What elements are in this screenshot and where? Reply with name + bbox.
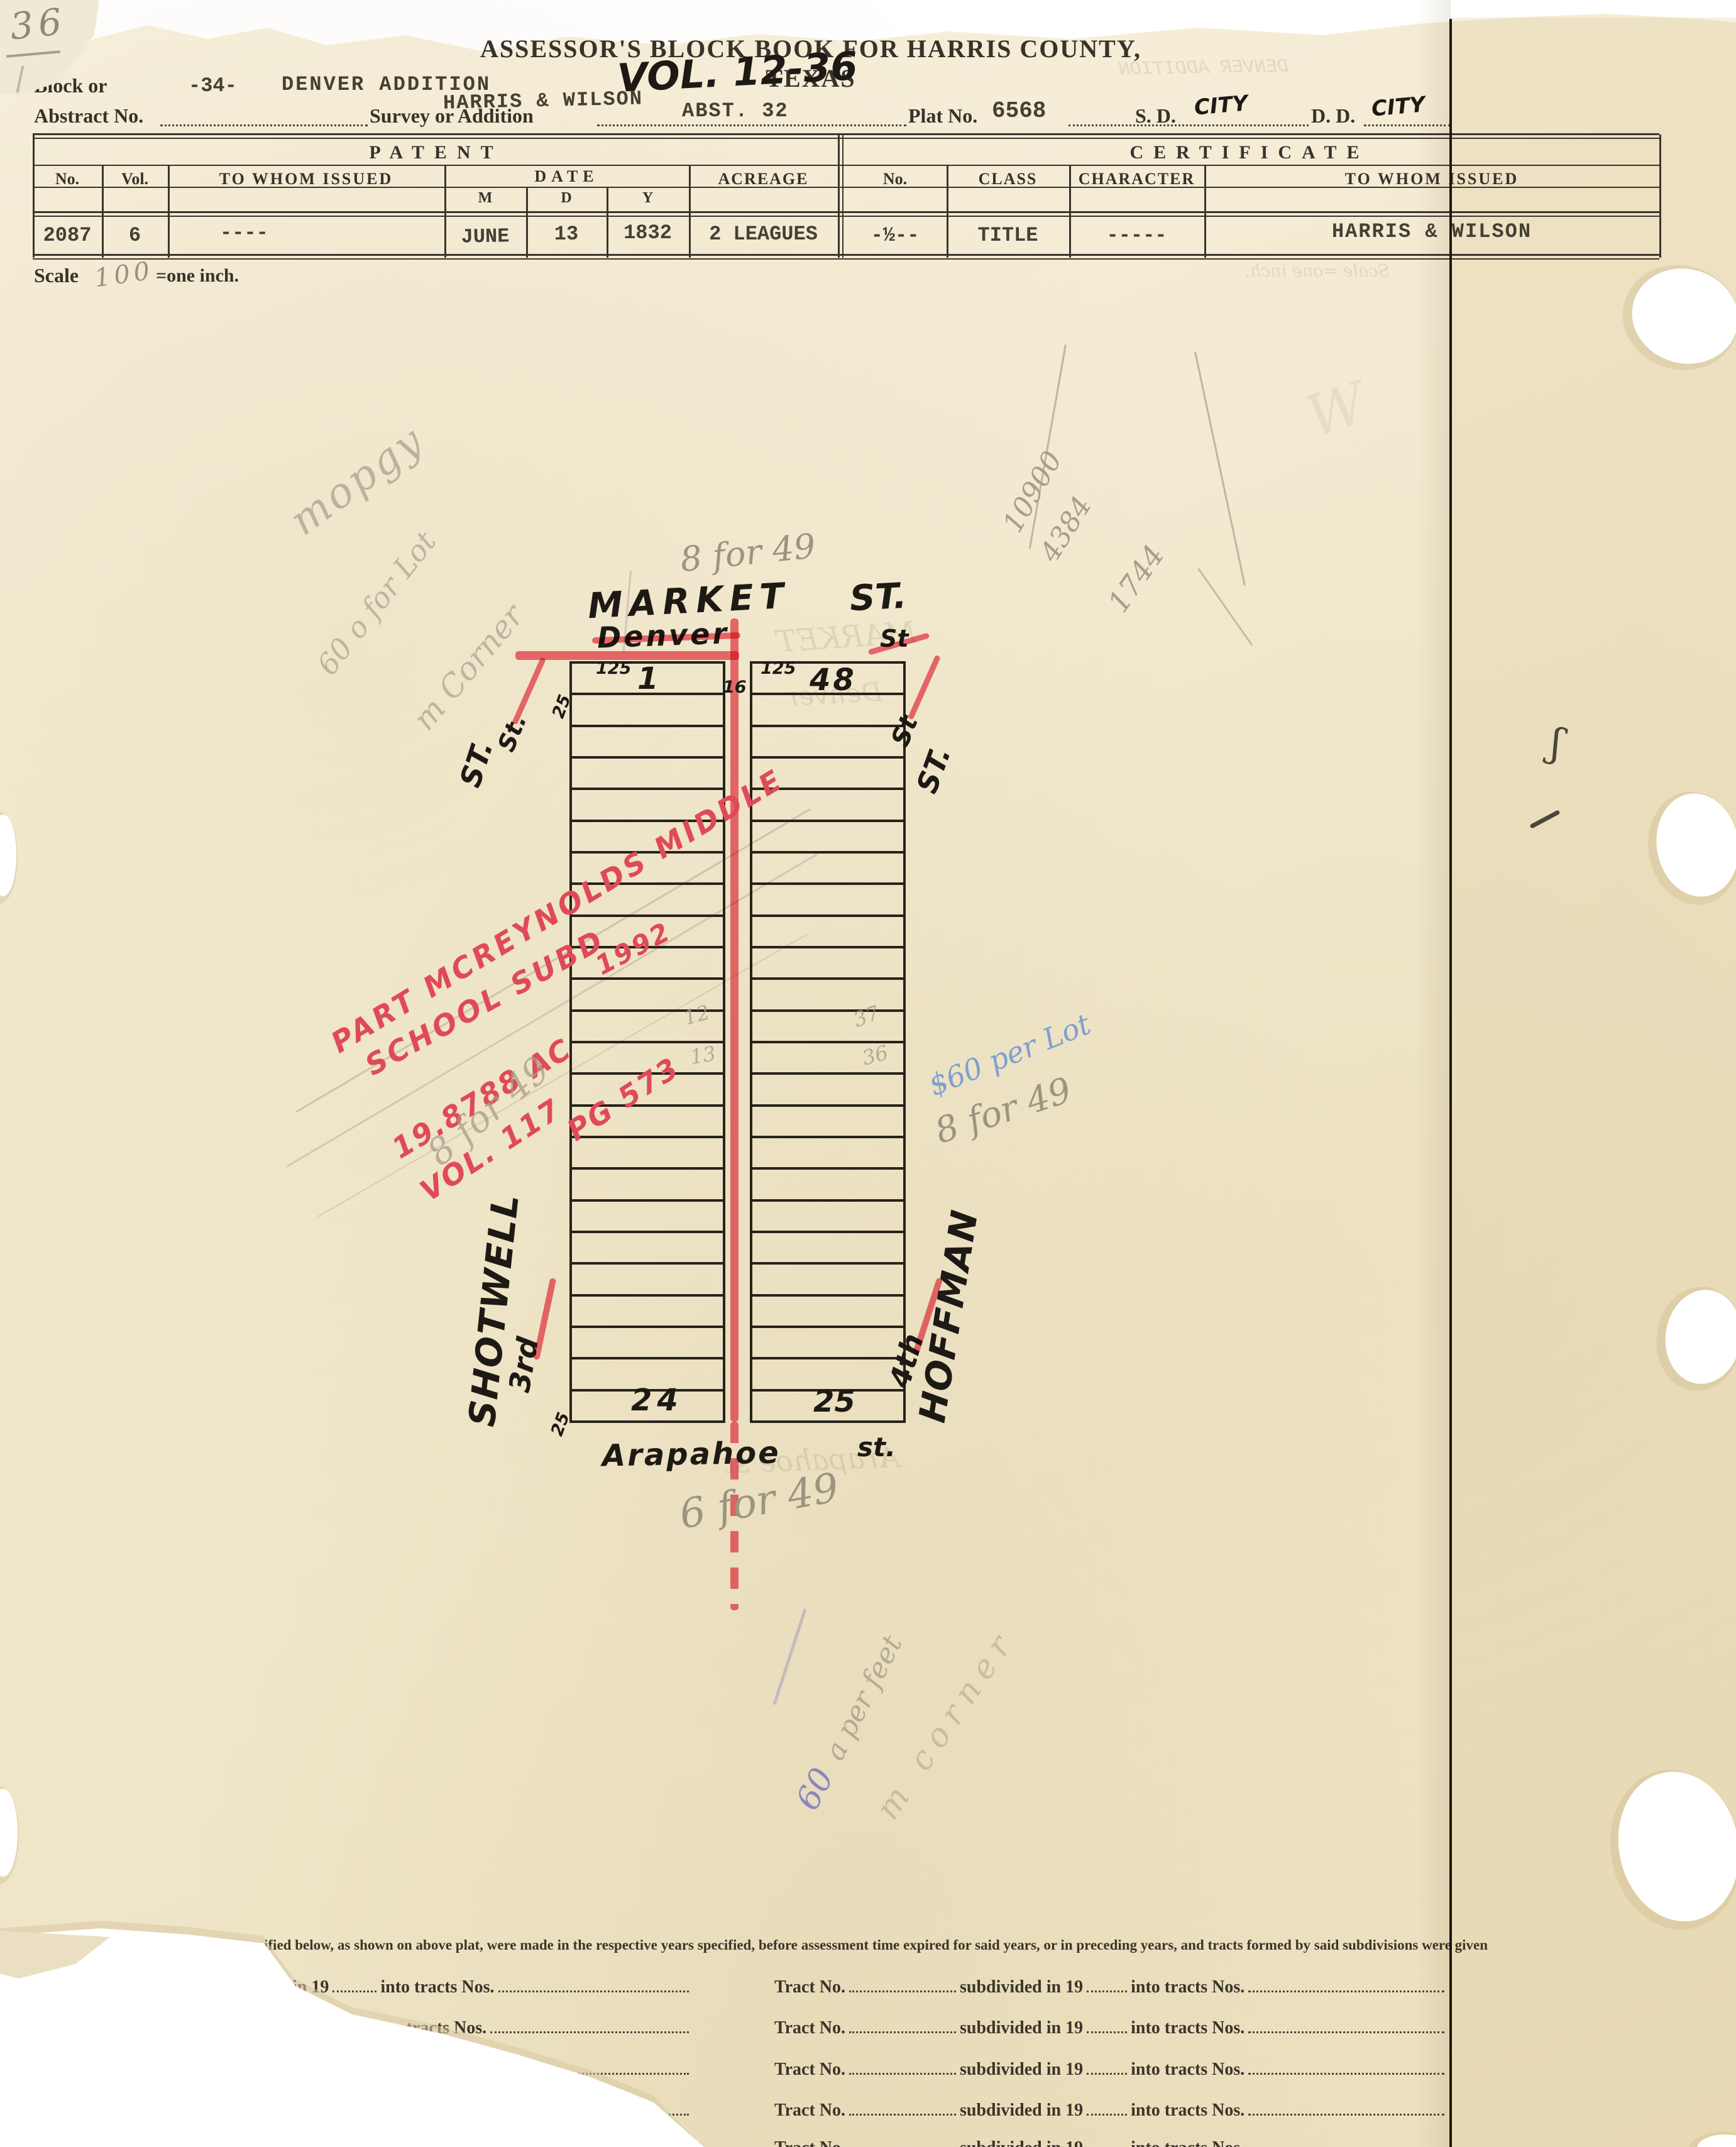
- plat-cell: [752, 1294, 903, 1326]
- plat-cell: [752, 1326, 903, 1357]
- plat-cell: [752, 946, 903, 977]
- patent-col-d: D: [526, 190, 607, 207]
- header-rule: [597, 123, 906, 126]
- header-rule: [1069, 123, 1309, 126]
- patent-col-m: M: [444, 190, 526, 207]
- subdivided-label: subdivided in 19: [960, 1977, 1083, 1997]
- tract-label: Tract No.: [774, 2018, 845, 2038]
- patent-day-value: 13: [526, 222, 607, 246]
- into-label: into tracts Nos.: [1131, 2138, 1244, 2147]
- into-label: into tracts Nos.: [1131, 2018, 1244, 2038]
- form-row-right: Tract No.subdivided in 19into tracts Nos…: [774, 2138, 1448, 2147]
- dotted-leader: [1087, 2110, 1127, 2116]
- form-row-right: Tract No.subdivided in 19into tracts Nos…: [774, 2060, 1448, 2080]
- plat-cell: [572, 1199, 723, 1231]
- scale-suffix: =one inch.: [156, 265, 239, 287]
- cert-character-value: -----: [1069, 224, 1204, 247]
- dotted-leader: [1248, 1987, 1444, 1992]
- red-line-vertical: [730, 618, 739, 1422]
- dotted-leader: [1248, 2028, 1444, 2033]
- into-label: into tracts Nos.: [1131, 2100, 1244, 2121]
- patent-to-whom-value: ----: [220, 221, 268, 244]
- table-rule: [33, 211, 1659, 213]
- cert-to-whom-value: HARRIS & WILSON: [1204, 220, 1659, 243]
- table-rule: [33, 258, 1659, 260]
- form-row-right: Tract No.subdivided in 19into tracts Nos…: [774, 2018, 1448, 2038]
- patent-col-vol: Vol.: [102, 170, 168, 189]
- plat-column-left: [569, 661, 725, 1423]
- plat-cell: [572, 1136, 723, 1167]
- dotted-leader: [1087, 2069, 1127, 2075]
- cert-class-value: TITLE: [947, 224, 1069, 247]
- patent-col-y: Y: [607, 190, 689, 207]
- form-row-right: Tract No.subdivided in 19into tracts Nos…: [774, 1977, 1448, 1997]
- form-paragraph: ified below, as shown on above plat, wer…: [264, 1937, 1488, 1953]
- plat-cell: [752, 1199, 903, 1231]
- survey-value: HARRIS & WILSON: [443, 87, 644, 114]
- plat-label: Plat No.: [908, 104, 977, 128]
- form-row-right: Tract No.subdivided in 19into tracts Nos…: [774, 2100, 1448, 2121]
- plat-cell: [752, 1231, 903, 1262]
- dotted-leader: [849, 2110, 956, 2116]
- table-rule: [1659, 135, 1661, 258]
- lot-number-25: 25: [813, 1384, 855, 1419]
- plat-cell: [752, 725, 903, 756]
- plat-cell: [572, 725, 723, 756]
- lot-number-24: 24: [631, 1383, 683, 1418]
- binding-line: [1449, 19, 1452, 2147]
- plat-cell: [572, 693, 723, 724]
- dotted-leader: [849, 2028, 956, 2033]
- scale-label: Scale: [34, 264, 79, 287]
- patent-col-to-whom: TO WHOM ISSUED: [168, 170, 444, 189]
- plat-cell: [752, 851, 903, 882]
- table-rule: [33, 133, 1659, 135]
- lot-number-48: 48: [810, 662, 857, 698]
- table-rule: [33, 165, 1659, 166]
- patent-col-date: DATE: [444, 167, 689, 186]
- patent-month-value: JUNE: [444, 224, 527, 249]
- dotted-leader: [849, 1987, 956, 1992]
- lot-number-1: 1: [637, 661, 658, 696]
- plat-cell: [752, 914, 903, 946]
- tract-label: Tract No.: [774, 2060, 845, 2080]
- ghost-scale-line: Scale =one inch.: [1244, 261, 1390, 281]
- dd-label: D. D.: [1311, 104, 1355, 128]
- tract-label: Tract No.: [774, 2100, 845, 2121]
- table-rule: [33, 138, 1659, 139]
- patent-col-no: No.: [33, 170, 102, 189]
- form-into-label: into tracts Nos.: [380, 1977, 494, 1997]
- patent-vol-value: 6: [102, 224, 168, 247]
- pencil-page-number: 36: [8, 0, 69, 48]
- dim-16: 16: [723, 678, 747, 697]
- table-rule: [33, 254, 1659, 256]
- subdivided-label: subdivided in 19: [960, 2100, 1083, 2121]
- patent-year-value: 1832: [607, 221, 689, 244]
- plat-cell: [752, 820, 903, 851]
- plat-cell: [572, 1231, 723, 1262]
- plat-cell: [752, 1136, 903, 1167]
- plat-cell: [752, 1262, 903, 1293]
- subdivided-label: subdivided in 19: [960, 2018, 1083, 2038]
- cert-col-to-whom: TO WHOM ISSUED: [1204, 170, 1659, 189]
- plat-cell: [572, 1262, 723, 1293]
- dim-125-right: 125: [761, 659, 796, 678]
- abstract-label: Abstract No.: [34, 104, 143, 128]
- dotted-leader: [332, 1987, 376, 1992]
- block-value: -34-: [189, 74, 237, 97]
- sd-value: CITY: [1193, 91, 1249, 120]
- sd-label: S. D.: [1135, 104, 1176, 128]
- ghost-addition: DENVER ADDITION: [1119, 57, 1289, 81]
- street-arapahoe: Arapahoe: [602, 1436, 781, 1474]
- cert-col-character: CHARACTER: [1069, 170, 1204, 189]
- cert-col-class: CLASS: [947, 170, 1069, 189]
- subdivided-label: subdivided in 19: [960, 2060, 1083, 2080]
- plat-cell: [752, 1167, 903, 1199]
- dotted-leader: [1087, 1987, 1127, 1992]
- street-arapahoe-st: st.: [857, 1432, 896, 1463]
- cert-no-value: -½--: [843, 224, 947, 247]
- binding-shadow: [1415, 0, 1451, 2147]
- header-rule: [1364, 123, 1451, 126]
- street-market-st: ST.: [849, 576, 908, 620]
- plat-value: 6568: [992, 98, 1046, 124]
- cert-col-no: No.: [843, 170, 947, 189]
- form-row-left: ed in 19into tracts Nos.: [270, 1977, 693, 1997]
- patent-acreage-value: 2 LEAGUES: [689, 222, 838, 246]
- plat-cell: [752, 1009, 903, 1041]
- plat-cell: [572, 1167, 723, 1199]
- dotted-leader: [1248, 2069, 1444, 2075]
- patent-no-value: 2087: [33, 224, 102, 247]
- abstract-value: ABST. 32: [682, 99, 789, 123]
- table-rule: [33, 216, 1659, 217]
- plat-cell: [752, 1104, 903, 1136]
- assessor-block-book-page: DENVER ADDITION MARKET Denver Arapahoe s…: [0, 0, 1736, 2147]
- patent-section-title: PATENT: [33, 142, 840, 163]
- certificate-section-title: CERTIFICATE: [840, 142, 1659, 163]
- dotted-leader: [849, 2069, 956, 2075]
- dim-125-left: 125: [596, 659, 631, 678]
- dotted-leader: [1248, 2110, 1444, 2116]
- dd-value: CITY: [1370, 92, 1426, 121]
- header-rule: [160, 123, 368, 126]
- tract-label: Tract No.: [774, 2138, 845, 2147]
- dotted-leader: [498, 1987, 689, 1992]
- plat-cell: [572, 1326, 723, 1357]
- patent-col-acreage: ACREAGE: [689, 170, 838, 189]
- plat-cell: [572, 1294, 723, 1326]
- plat-cell: [752, 1072, 903, 1104]
- dotted-leader: [1087, 2028, 1127, 2033]
- tract-label: Tract No.: [774, 1977, 845, 1997]
- plat-cell: [752, 882, 903, 914]
- cell-pencil-13: 13: [688, 1041, 718, 1069]
- plat-cell: [572, 756, 723, 788]
- plat-cell: [752, 977, 903, 1009]
- dotted-leader: [490, 2028, 689, 2033]
- subdivided-label: subdivided in 19: [960, 2138, 1083, 2147]
- into-label: into tracts Nos.: [1131, 1977, 1244, 1997]
- into-label: into tracts Nos.: [1131, 2060, 1244, 2080]
